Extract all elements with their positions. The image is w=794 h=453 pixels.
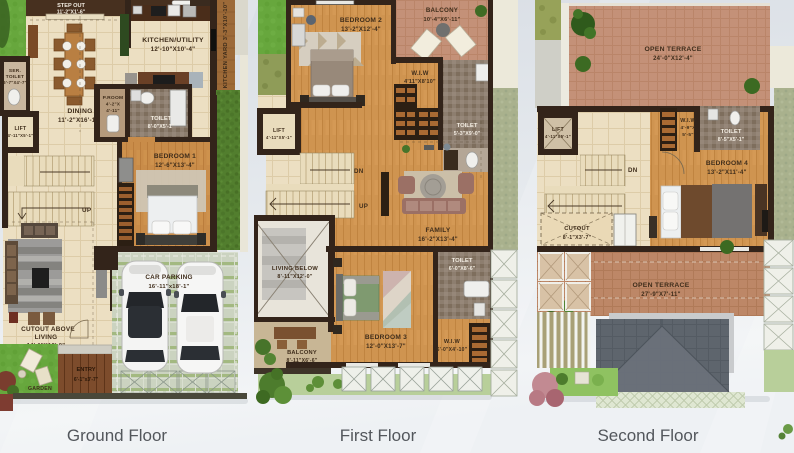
svg-text:BEDROOM 1: BEDROOM 1	[154, 153, 196, 160]
svg-text:CAR PARKING: CAR PARKING	[145, 274, 192, 281]
svg-text:OPEN TERRACE: OPEN TERRACE	[632, 282, 689, 289]
svg-text:4'-11"X5'-1": 4'-11"X5'-1"	[545, 134, 571, 139]
svg-text:LIFT: LIFT	[273, 128, 286, 134]
svg-text:DN: DN	[354, 168, 364, 175]
svg-text:TOILET: TOILET	[721, 129, 742, 135]
svg-text:5'-3"X9'-0": 5'-3"X9'-0"	[454, 131, 481, 137]
svg-text:UP: UP	[359, 203, 368, 210]
svg-text:BEDROOM 3: BEDROOM 3	[365, 334, 407, 341]
svg-text:P.ROOM: P.ROOM	[103, 95, 124, 101]
svg-text:W.I.W: W.I.W	[680, 118, 696, 124]
svg-text:LIFT: LIFT	[15, 126, 28, 132]
svg-text:TOILET: TOILET	[151, 116, 172, 122]
svg-text:GARDEN: GARDEN	[28, 386, 52, 392]
svg-text:TOILET: TOILET	[457, 123, 478, 129]
svg-text:27'-9"X7'-11": 27'-9"X7'-11"	[641, 292, 680, 298]
svg-text:First Floor: First Floor	[340, 426, 417, 445]
svg-text:CUTOUT: CUTOUT	[564, 226, 590, 232]
svg-text:STEP OUT: STEP OUT	[57, 3, 85, 9]
svg-text:8'-11"X12'-0": 8'-11"X12'-0"	[277, 274, 312, 280]
svg-text:LIVING: LIVING	[35, 334, 58, 341]
svg-text:LIVING BELOW: LIVING BELOW	[272, 266, 318, 272]
svg-text:ENTRY: ENTRY	[76, 367, 95, 373]
svg-text:Ground Floor: Ground Floor	[67, 426, 167, 445]
svg-text:12'-10"X10'-4": 12'-10"X10'-4"	[151, 46, 196, 53]
svg-text:BALCONY: BALCONY	[426, 7, 459, 14]
svg-text:4'-11"X5'-1": 4'-11"X5'-1"	[8, 133, 34, 138]
svg-text:13'-2"X11'-4": 13'-2"X11'-4"	[707, 170, 746, 176]
svg-text:6'-0"X4'-10": 6'-0"X4'-10"	[437, 347, 468, 353]
svg-text:KITCHEN YARD 3'-3"X10'-10": KITCHEN YARD 3'-3"X10'-10"	[223, 2, 229, 89]
svg-text:6'-0"X8'-6": 6'-0"X8'-6"	[449, 266, 476, 272]
svg-text:LIFT: LIFT	[552, 127, 565, 133]
svg-text:SER.: SER.	[9, 68, 21, 74]
svg-text:W.I.W: W.I.W	[444, 339, 461, 345]
svg-text:8'-5"X5'-1": 8'-5"X5'-1"	[718, 137, 745, 143]
svg-text:DN: DN	[628, 167, 638, 174]
svg-text:UP: UP	[82, 207, 92, 214]
svg-text:13'-2"X12'-4": 13'-2"X12'-4"	[341, 27, 381, 33]
svg-text:24'-0"X12'-4": 24'-0"X12'-4"	[653, 56, 693, 62]
svg-text:BALCONY: BALCONY	[287, 350, 317, 356]
svg-text:8'-0"X5'-1": 8'-0"X5'-1"	[148, 124, 175, 130]
svg-text:Second Floor: Second Floor	[597, 426, 698, 445]
svg-text:BEDROOM 2: BEDROOM 2	[340, 17, 382, 24]
svg-text:16'-2"X13'-4": 16'-2"X13'-4"	[418, 237, 458, 243]
svg-text:W.I.W: W.I.W	[411, 71, 428, 77]
svg-text:4'-2"X: 4'-2"X	[106, 102, 120, 107]
svg-text:12'-6"X13'-4": 12'-6"X13'-4"	[155, 163, 195, 169]
svg-text:5'-5": 5'-5"	[682, 132, 694, 138]
svg-text:10'-4"X6'-11": 10'-4"X6'-11"	[423, 17, 460, 23]
svg-text:OPEN TERRACE: OPEN TERRACE	[644, 46, 701, 53]
svg-text:4'-11"X5'-1": 4'-11"X5'-1"	[266, 135, 292, 140]
svg-text:6'-1"x3'-7": 6'-1"x3'-7"	[74, 377, 99, 383]
svg-text:CUTOUT ABOVE: CUTOUT ABOVE	[21, 326, 75, 333]
svg-text:6'-7"X4'-7": 6'-7"X4'-7"	[3, 80, 27, 85]
svg-text:BEDROOM 4: BEDROOM 4	[706, 160, 748, 167]
svg-text:FAMILY: FAMILY	[425, 227, 450, 234]
svg-text:8'-1"X3'-7": 8'-1"X3'-7"	[563, 235, 592, 241]
svg-text:4'-9"X: 4'-9"X	[680, 125, 696, 131]
svg-text:4'-11": 4'-11"	[106, 108, 119, 113]
svg-text:KITCHEN/UTILITY: KITCHEN/UTILITY	[142, 37, 204, 44]
svg-text:12'-0"X13'-7": 12'-0"X13'-7"	[366, 344, 406, 350]
svg-text:16'-11"x18'-1": 16'-11"x18'-1"	[148, 284, 189, 290]
svg-text:TOILET: TOILET	[452, 258, 473, 264]
